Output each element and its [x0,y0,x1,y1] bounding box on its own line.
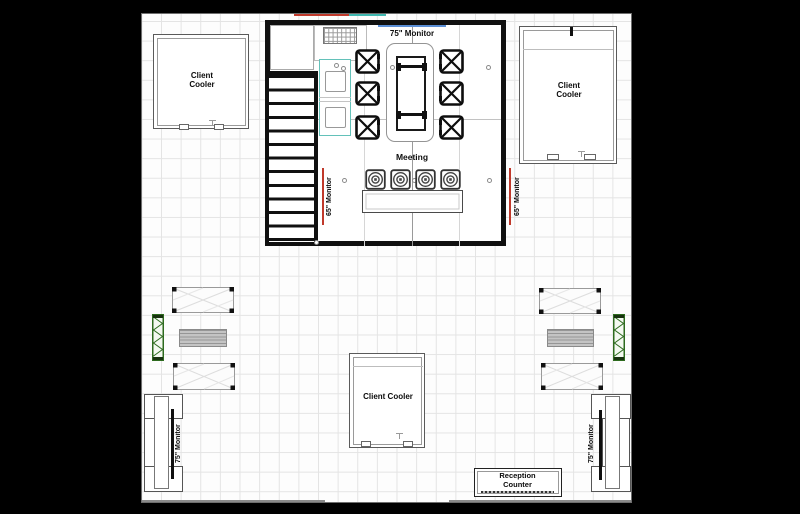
cooler-label-line2: Cooler [154,80,250,89]
monitor-65-right-label: 65" Monitor [514,164,521,230]
bar-stool [390,169,411,190]
stair-corner-circle [314,240,319,245]
display-truss-crate [173,363,235,390]
cooler-door-mark [403,441,413,447]
floorplan-screenshot: { "labels": { "monitor_75_top": "75\" Mo… [0,0,800,514]
cooler-door-mark [214,124,224,130]
reception-counter: Reception Counter [474,468,562,497]
meeting-chair [355,81,380,106]
reference-circle [341,66,346,71]
bar-stool [440,169,461,190]
cooler-door-mark [361,441,371,447]
reception-label-line2: Counter [475,481,560,490]
counter-stool [325,71,346,92]
meeting-label-text: Meeting [396,152,428,162]
meeting-label: Meeting [372,152,452,162]
reception-counter-label: Reception Counter [475,472,560,490]
bar-stool [415,169,436,190]
bench [179,329,227,347]
accent-strip-teal [349,14,386,16]
display-truss-crate [539,288,601,314]
cooler-label-line1: Client [154,71,250,80]
monitor-75-top-text: 75" Monitor [390,29,434,38]
counter-stool [325,107,346,128]
bench [547,329,594,347]
monitor-65-right-line [509,168,511,225]
reference-circle [342,178,347,183]
meeting-chair [355,115,380,140]
green-truss [613,314,625,361]
display-truss-crate [172,287,234,313]
meeting-chair [439,49,464,74]
cooler-door-mark [547,154,559,160]
monitor-75-top-label: 75" Monitor [373,29,451,38]
cooler-shelf-line [353,366,423,367]
staircase [265,71,318,246]
client-cooler-top-right: Client Cooler [519,26,617,164]
cooler-bottom-label: Client Cooler [344,392,432,401]
green-truss [152,314,164,361]
table-mount-bracket [399,65,424,68]
reception-counter-hatch [481,491,554,494]
cooler-shelf-line [523,49,613,50]
monitor-65-left-line [322,168,324,225]
booth-bottom-wall-right [449,500,632,503]
reference-circle [486,65,491,70]
booth-bottom-wall-left [142,500,325,503]
cooler-top-right-label: Client Cooler [520,81,618,100]
table-mount-bracket [399,113,424,116]
monitor-wall-column [154,396,169,489]
cooler-label-line2: Cooler [520,90,618,99]
cooler-door-mark [584,154,596,160]
cooler-top-tick [570,27,573,36]
counter-circle [334,63,339,68]
cooler-label-line1: Client [520,81,618,90]
grid-pallet [323,27,357,44]
meeting-chair [439,81,464,106]
monitor-75-bottom-left-label: 75" Monitor [175,412,182,476]
door-t-mark [396,433,403,439]
reference-circle [487,178,492,183]
cooler-top-left-label: Client Cooler [154,71,250,90]
display-truss-crate [541,363,603,390]
side-counter-edge [319,101,351,102]
bar-stool [365,169,386,190]
meeting-chair [439,115,464,140]
back-counter [362,190,463,213]
meeting-chair [355,49,380,74]
side-counter-edge [319,97,351,98]
monitor-75-left-screen [171,409,174,479]
stair-landing [270,25,314,70]
client-cooler-bottom: Client Cooler [349,353,425,448]
monitor-wall-column [605,396,620,489]
client-cooler-top-left: Client Cooler [153,34,249,129]
reference-circle [390,65,395,70]
monitor-75-right-screen [599,410,602,480]
monitor-75-bottom-right-label: 75" Monitor [588,412,595,476]
booth-floor-plan: Meeting 75" Monitor 65" Monitor 65" Moni… [141,13,632,503]
accent-strip-red [294,14,349,16]
monitor-75-top-line [378,25,446,27]
cooler-door-mark [179,124,189,130]
monitor-65-left-label: 65" Monitor [326,164,333,230]
